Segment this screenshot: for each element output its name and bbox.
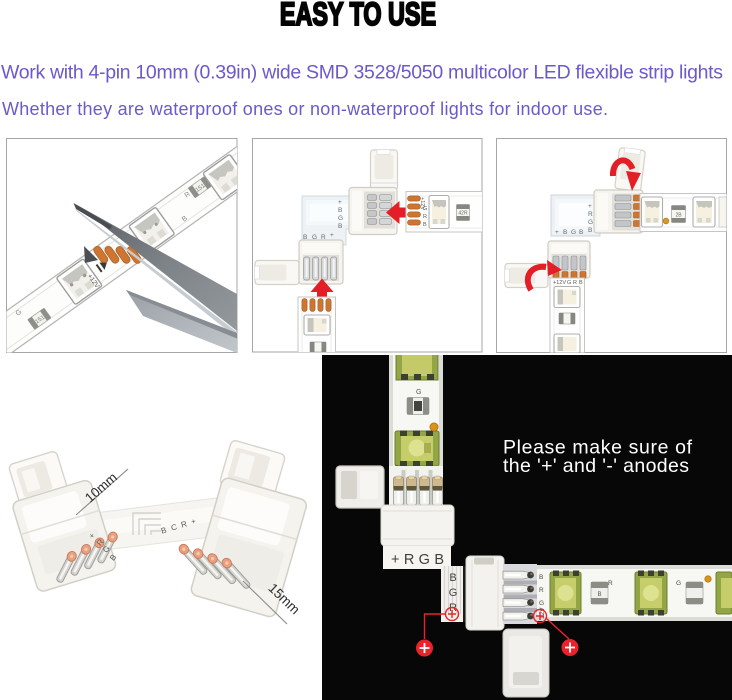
- svg-text:Work with 4-pin 10mm (0.39in): Work with 4-pin 10mm (0.39in) wide SMD 3…: [1, 62, 723, 84]
- svg-text:B: B: [423, 222, 427, 228]
- svg-text:G: G: [588, 219, 593, 226]
- svg-text:G: G: [539, 600, 544, 607]
- svg-text:G: G: [449, 587, 458, 599]
- svg-text:B: B: [539, 574, 543, 581]
- svg-text:R: R: [573, 280, 577, 286]
- svg-text:G: G: [338, 215, 343, 222]
- svg-text:B: B: [588, 227, 592, 234]
- svg-text:R: R: [608, 580, 613, 587]
- svg-text:the '+' and '-' anodes: the '+' and '-' anodes: [503, 455, 689, 477]
- svg-text:+ R G B: + R G B: [391, 552, 444, 568]
- svg-text:+: +: [330, 232, 334, 239]
- svg-text:+12V: +12V: [553, 280, 566, 286]
- svg-text:B: B: [338, 207, 342, 214]
- svg-text:G: G: [416, 389, 421, 396]
- svg-text:+: +: [555, 229, 559, 236]
- svg-text:B: B: [338, 223, 342, 230]
- svg-text:R: R: [423, 214, 427, 220]
- svg-text:B: B: [597, 592, 601, 598]
- svg-text:R: R: [539, 587, 544, 594]
- svg-text:R: R: [588, 211, 593, 218]
- svg-text:EASY TO USE: EASY TO USE: [280, 0, 436, 32]
- svg-text:+: +: [338, 199, 342, 206]
- svg-text:B: B: [579, 229, 583, 236]
- svg-text:Whether they are waterproof on: Whether they are waterproof ones or non-…: [2, 99, 608, 119]
- svg-text:B: B: [563, 229, 567, 236]
- svg-text:B: B: [579, 280, 583, 286]
- svg-text:G: G: [571, 229, 576, 236]
- svg-text:G: G: [423, 206, 427, 212]
- svg-text:42R: 42R: [458, 211, 468, 217]
- svg-text:G: G: [567, 280, 571, 286]
- svg-text:+: +: [588, 203, 592, 210]
- svg-text:2B: 2B: [675, 213, 682, 219]
- svg-text:G: G: [676, 580, 681, 587]
- svg-text:B: B: [449, 572, 456, 584]
